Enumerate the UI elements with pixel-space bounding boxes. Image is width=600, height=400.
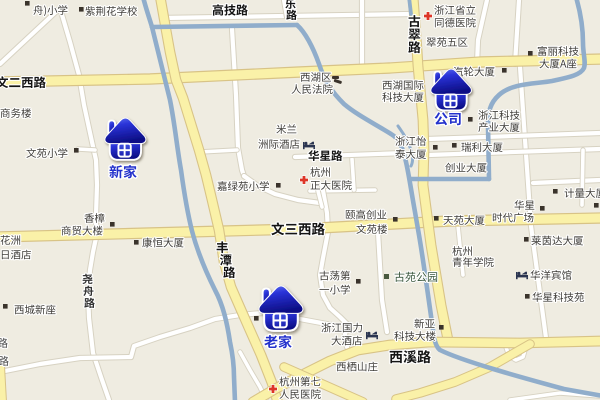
svg-text:康恒大厦: 康恒大厦 bbox=[142, 236, 184, 251]
svg-text:日酒店: 日酒店 bbox=[0, 248, 32, 263]
svg-text:老家: 老家 bbox=[264, 332, 292, 352]
svg-text:文苑小学: 文苑小学 bbox=[26, 146, 68, 161]
svg-text:西城新座: 西城新座 bbox=[14, 303, 56, 318]
svg-text:泰大厦: 泰大厦 bbox=[395, 147, 427, 162]
svg-text:大酒店: 大酒店 bbox=[331, 334, 363, 349]
svg-text:一小学: 一小学 bbox=[319, 283, 351, 298]
svg-text:人民医院: 人民医院 bbox=[279, 387, 321, 400]
svg-text:路: 路 bbox=[223, 262, 236, 281]
svg-text:华星科技苑: 华星科技苑 bbox=[532, 290, 585, 305]
svg-text:嘉绿苑小学: 嘉绿苑小学 bbox=[217, 179, 270, 194]
svg-text:洲际酒店: 洲际酒店 bbox=[258, 137, 300, 152]
svg-text:商贸大楼: 商贸大楼 bbox=[61, 224, 103, 239]
svg-text:古荡第: 古荡第 bbox=[319, 269, 351, 284]
svg-text:古苑公园: 古苑公园 bbox=[394, 269, 438, 285]
svg-text:文苑楼: 文苑楼 bbox=[356, 222, 388, 237]
svg-text:翠苑五区: 翠苑五区 bbox=[426, 35, 468, 50]
svg-text:正大医院: 正大医院 bbox=[310, 178, 352, 193]
svg-text:同德医院: 同德医院 bbox=[434, 16, 476, 31]
svg-text:花洲: 花洲 bbox=[0, 233, 21, 248]
svg-text:青年学院: 青年学院 bbox=[452, 255, 494, 270]
svg-text:华洋宾馆: 华洋宾馆 bbox=[530, 268, 572, 283]
svg-text:路: 路 bbox=[0, 353, 9, 369]
svg-text:科技大楼: 科技大楼 bbox=[394, 329, 436, 344]
svg-text:颐高创业: 颐高创业 bbox=[345, 208, 387, 223]
svg-text:路: 路 bbox=[0, 335, 8, 351]
svg-text:路: 路 bbox=[286, 7, 297, 23]
svg-text:路: 路 bbox=[408, 37, 421, 56]
svg-text:米兰: 米兰 bbox=[276, 122, 297, 137]
svg-text:创业大厦: 创业大厦 bbox=[445, 161, 487, 176]
svg-text:产业大厦: 产业大厦 bbox=[478, 120, 520, 135]
svg-text:文二西路: 文二西路 bbox=[0, 72, 47, 91]
svg-text:瑞利大厦: 瑞利大厦 bbox=[461, 140, 503, 155]
svg-text:华星路: 华星路 bbox=[308, 148, 343, 164]
svg-text:莱茵达大厦: 莱茵达大厦 bbox=[531, 234, 584, 249]
svg-text:舟)小学: 舟)小学 bbox=[33, 3, 68, 18]
svg-text:人民法院: 人民法院 bbox=[291, 82, 333, 97]
svg-text:文三西路: 文三西路 bbox=[271, 218, 325, 238]
svg-text:西栖山庄: 西栖山庄 bbox=[336, 360, 378, 375]
svg-text:西溪路: 西溪路 bbox=[389, 347, 431, 367]
svg-text:紫荆花学校: 紫荆花学校 bbox=[85, 4, 138, 19]
svg-text:计量大厦: 计量大厦 bbox=[564, 186, 600, 201]
svg-text:公司: 公司 bbox=[434, 109, 462, 129]
svg-text:高技路: 高技路 bbox=[212, 2, 248, 19]
svg-text:新家: 新家 bbox=[109, 162, 137, 182]
svg-text:天苑大厦: 天苑大厦 bbox=[443, 213, 485, 228]
svg-text:路: 路 bbox=[84, 295, 95, 311]
svg-text:科技大厦: 科技大厦 bbox=[382, 90, 424, 105]
svg-text:华星: 华星 bbox=[514, 198, 535, 213]
svg-text:商务楼: 商务楼 bbox=[0, 106, 32, 121]
svg-text:大厦A座: 大厦A座 bbox=[539, 57, 577, 72]
